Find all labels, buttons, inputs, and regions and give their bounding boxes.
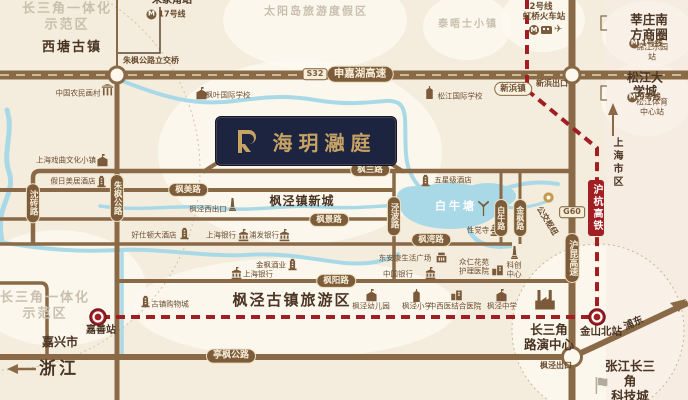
- town-roadshow-center: 长三角 路演中心: [524, 322, 574, 352]
- poi-five-star-hotel-label: 五星级酒店: [434, 175, 472, 184]
- poi-fengjing-kindergarten-label: 枫泾幼儿园: [352, 301, 390, 310]
- pill-shenzhuan: 沈砖路: [26, 183, 40, 223]
- poi-nursing-hospital-label: 众仁花苑 护理医院: [459, 258, 489, 277]
- metro-icon: M: [146, 9, 156, 19]
- pill-zhufeng: 朱枫公路: [110, 174, 124, 222]
- bank-icon: [424, 267, 437, 280]
- pond-bainiutang: 白牛塘: [435, 199, 477, 212]
- bank-icon: [230, 267, 243, 280]
- hongqiao-transport-icons: M ✈: [529, 25, 562, 35]
- town-fengjing-oldtown: 枫泾古镇旅游区: [232, 291, 351, 309]
- pill-bainiu: 白牛路: [494, 199, 508, 237]
- pill-xinbang-town: 新浜镇: [494, 82, 532, 96]
- label-xinbang-exit: 新浜出口: [536, 79, 568, 89]
- metro-2-station: 虹桥火车站: [523, 12, 566, 22]
- project-badge: 海玥瀜庭: [215, 116, 397, 166]
- windmill-icon: [475, 199, 492, 216]
- metro-9-line: M9号线: [627, 92, 661, 103]
- bank-icon: [278, 229, 291, 242]
- poi-oldtown-mall-label: 古镇购物城: [151, 299, 189, 308]
- metro-icon: M: [529, 25, 539, 35]
- poi-west-exit-label: 枫泾西出口: [189, 204, 227, 213]
- mall-icon: [435, 251, 448, 264]
- metro-line-label: 9号线: [639, 92, 661, 103]
- poi-tcm-hospital-label: 中西医结合医院: [429, 301, 482, 310]
- pill-fengjing-rd: 枫景路: [309, 213, 349, 227]
- pill-hukun: 沪昆高速: [565, 233, 580, 283]
- map-base-layer: [0, 0, 688, 400]
- station-zhujiajiao: 朱家角站: [152, 0, 192, 7]
- church-icon: [410, 289, 423, 302]
- town-fengjing-newtown: 枫泾镇新城: [269, 194, 334, 208]
- zone-thames-town: 泰晤士小镇: [438, 19, 498, 31]
- interchange-zhufeng-s32: [109, 67, 125, 83]
- poi-jinfeng-winery-label: 金枫酒业: [256, 260, 286, 269]
- poi-xingjue-temple-label: 性觉寺: [467, 225, 490, 234]
- zone-sun-island: 太阳岛旅游度假区: [264, 4, 368, 17]
- pill-jinfeng: 金枫路: [513, 199, 527, 237]
- pill-fengwan: 枫湾路: [411, 233, 451, 247]
- pill-fengmei: 枫美路: [168, 183, 208, 197]
- poi-spd-bank-label: 浦发银行: [249, 230, 279, 239]
- pill-fengyang: 枫阳路: [316, 274, 356, 288]
- label-shanghai-downtown: 上海市区: [610, 137, 622, 189]
- poi-bank-of-china-label: 中国银行: [383, 269, 413, 278]
- school-icon: [96, 154, 109, 167]
- hospital-icon: [491, 263, 504, 276]
- poi-bank-of-shanghai-label: 上海银行: [206, 230, 236, 239]
- hotel-icon: [178, 227, 191, 240]
- town-jiaxing: 嘉兴市: [42, 335, 78, 349]
- label-interchange: 朱枫公路立交桥: [123, 56, 179, 66]
- hotel-icon: [419, 174, 432, 187]
- metro-17-line: M17号线: [146, 9, 185, 20]
- school-icon: [495, 289, 508, 302]
- train-icon: [541, 26, 552, 34]
- label-fengjing-exit: 枫泾出口: [540, 361, 572, 371]
- plane-icon: ✈: [554, 25, 562, 35]
- bank-icon: [237, 229, 250, 242]
- flag-icon: [593, 377, 610, 394]
- badge-s32: S32: [303, 68, 328, 80]
- poi-fengjing-middle-label: 枫泾中学: [487, 301, 517, 310]
- hospital-icon: [450, 288, 463, 301]
- rail-huhang: 沪杭高铁: [588, 180, 604, 236]
- monument-icon: [226, 198, 239, 211]
- zhejiang-arrow-head: [7, 364, 18, 374]
- pill-jingbo: 泾波路: [387, 196, 401, 236]
- poi-fengjing-primary-label: 枫泾小学: [402, 301, 432, 310]
- poi-tech-center-label: 科创 中心: [507, 261, 522, 280]
- town-zhangjiang-tech: 张江长三角 科技城: [601, 359, 659, 400]
- zone-csj-bottom: 长三角一体化 示范区: [0, 290, 90, 321]
- zone-csj-top: 长三角一体化 示范区: [22, 1, 112, 32]
- badge-g60: G60: [559, 206, 585, 218]
- pill-shenjiahu: 申嘉湖高速: [327, 66, 394, 83]
- metro-line-label: 17号线: [158, 9, 185, 20]
- poi-life-plaza-label: 东安康生活广场: [379, 253, 432, 262]
- town-zhejiang: 浙江: [39, 359, 79, 379]
- poi-haoshidun-hotel-label: 好仕顿大酒店: [132, 230, 177, 239]
- metro-icon: M: [627, 92, 637, 102]
- location-map: 海玥瀜庭 M ✈ 长三角一体化 示范区太阳岛旅游度假区泰晤士小镇长三角一体化 示…: [0, 0, 688, 400]
- project-logo-icon: [236, 129, 258, 153]
- hotel-icon: [95, 175, 108, 188]
- gate-icon: [101, 84, 114, 97]
- school-icon: [365, 289, 378, 302]
- metro-2-line: 2号线: [530, 2, 553, 12]
- poi-opera-culture-town-label: 上海戏曲文化小镇: [36, 155, 96, 164]
- project-title: 海玥瀜庭: [267, 127, 377, 156]
- station-jiashan: 嘉善站: [86, 325, 116, 337]
- zone-halos: [0, 0, 688, 400]
- hotel-icon: [139, 295, 152, 308]
- town-xitang: 西塘古镇: [42, 40, 102, 56]
- pill-tingfeng: 亭枫公路: [206, 349, 256, 364]
- poi-mercure-hotel-label: 假日美居酒店: [51, 176, 96, 185]
- poi-fengye-intl-school-label: 枫叶国际学校: [206, 90, 251, 99]
- hotel-icon: [286, 258, 299, 271]
- busdot-icon: [543, 192, 554, 203]
- metro-1-line: M1号线: [629, 38, 663, 49]
- monument-icon: [508, 246, 521, 259]
- church-icon: [423, 86, 436, 99]
- poi-bank-of-shanghai-2-label: 上海银行: [243, 269, 273, 278]
- metro-icon: M: [629, 38, 639, 48]
- metro-line-label: 1号线: [641, 38, 663, 49]
- factory-icon: [533, 287, 557, 311]
- poi-songjiang-intl-school-label: 松江国际学校: [438, 91, 483, 100]
- station-jinshan-north: 金山北站: [580, 326, 622, 339]
- poi-farmer-painting-village-label: 中国农民画村: [56, 88, 101, 97]
